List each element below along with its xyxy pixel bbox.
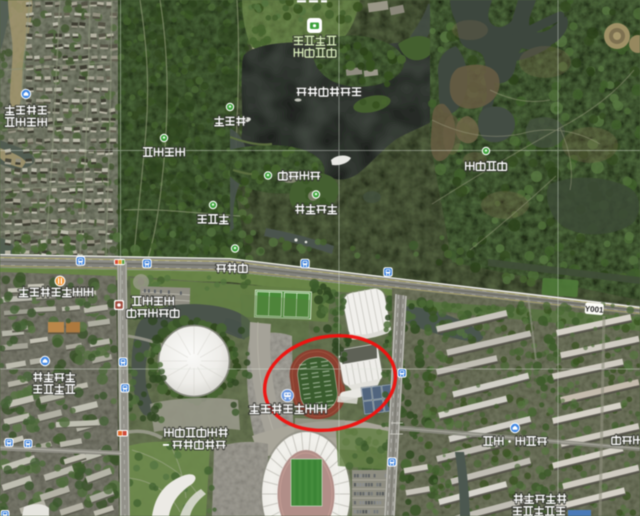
svg-text:Y001: Y001 — [584, 304, 604, 315]
